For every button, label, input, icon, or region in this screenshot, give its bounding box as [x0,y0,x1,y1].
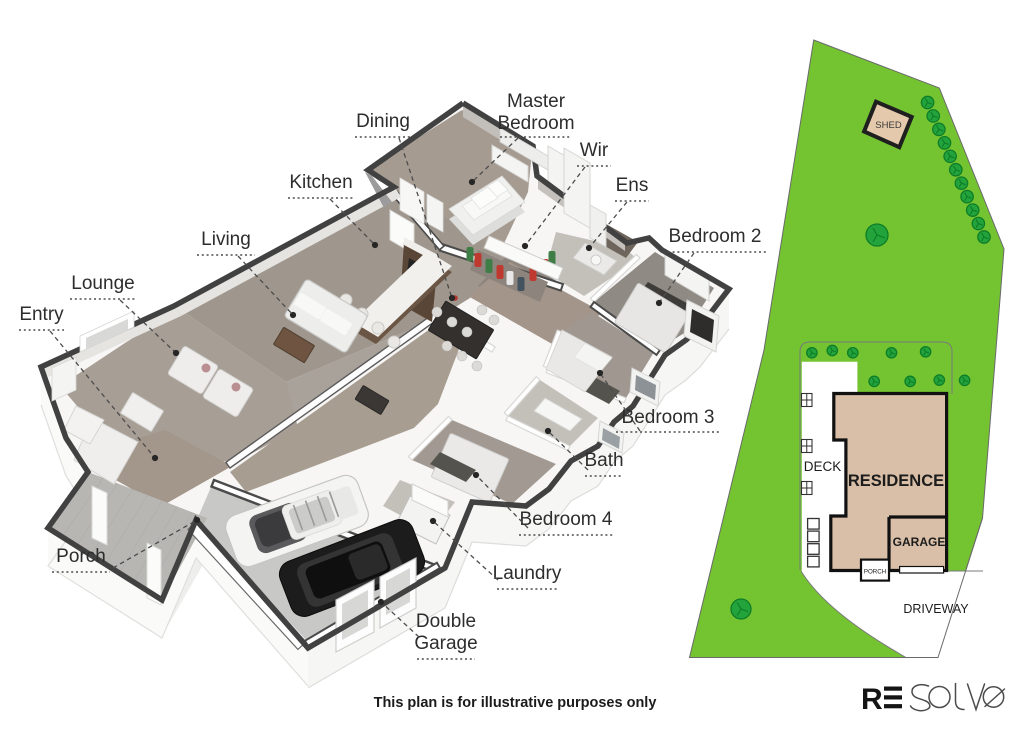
svg-text:Living: Living [201,229,251,250]
svg-text:DRIVEWAY: DRIVEWAY [903,602,969,616]
svg-text:Entry: Entry [19,304,64,325]
svg-text:Wir: Wir [580,140,609,161]
svg-text:Porch: Porch [56,546,106,567]
svg-text:Bedroom 4: Bedroom 4 [520,509,613,530]
svg-text:RESIDENCE: RESIDENCE [848,472,944,490]
svg-text:Ens: Ens [616,175,649,196]
svg-text:GARAGE: GARAGE [893,535,946,549]
svg-text:Dining: Dining [356,111,410,132]
svg-text:Master: Master [507,91,566,112]
svg-text:Bedroom 2: Bedroom 2 [669,226,762,247]
svg-text:Double: Double [416,611,476,632]
svg-text:Bedroom: Bedroom [497,113,574,134]
svg-text:Garage: Garage [414,633,477,654]
svg-text:DECK: DECK [804,459,842,474]
svg-text:Lounge: Lounge [71,273,134,294]
svg-text:SHED: SHED [875,120,902,131]
svg-text:Laundry: Laundry [493,563,562,584]
svg-text:This plan is for illustrative: This plan is for illustrative purposes o… [374,695,657,711]
svg-text:PORCH: PORCH [864,569,886,576]
svg-text:Bath: Bath [584,450,623,471]
svg-text:R: R [861,683,883,716]
svg-text:Kitchen: Kitchen [289,172,352,193]
svg-text:Bedroom 3: Bedroom 3 [622,407,715,428]
